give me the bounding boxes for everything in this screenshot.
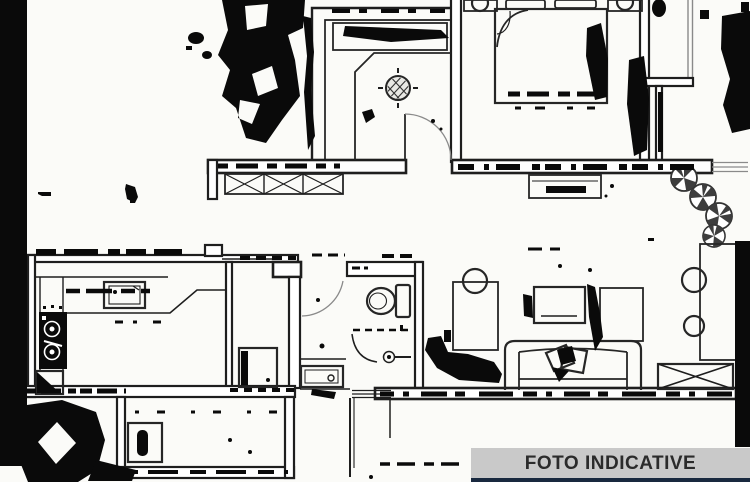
desk-icon bbox=[453, 269, 498, 350]
scan-blob-top bbox=[218, 0, 305, 143]
scan-blob-right bbox=[721, 11, 750, 133]
utility-room bbox=[128, 423, 162, 462]
bench-icon bbox=[529, 175, 601, 198]
window-hatch-icon bbox=[225, 174, 343, 194]
door-swing-icon bbox=[302, 281, 343, 316]
shelf-unit-icon bbox=[682, 244, 737, 360]
washing-machine-icon bbox=[239, 348, 277, 387]
scan-blob-bottom-left bbox=[16, 400, 105, 482]
kitchen bbox=[36, 277, 226, 394]
door-swing-icon bbox=[405, 114, 451, 160]
toilet-icon bbox=[367, 285, 410, 317]
floorplan-drawing bbox=[0, 0, 750, 482]
foto-indicative-banner: FOTO INDICATIVE bbox=[471, 448, 750, 482]
sofa-icon bbox=[505, 341, 641, 390]
left-scan-bar bbox=[0, 0, 27, 466]
bathroom-sink-icon bbox=[300, 359, 346, 387]
corridor bbox=[239, 348, 277, 387]
shower-drain-icon bbox=[352, 334, 411, 363]
scan-artifacts bbox=[0, 0, 750, 482]
radiator-x-icon bbox=[658, 364, 733, 389]
floorplan-screenshot: FOTO INDICATIVE bbox=[0, 0, 750, 482]
banner-navy-strip bbox=[471, 478, 750, 482]
ceiling-lamp-icon bbox=[378, 68, 422, 108]
pillow-icon bbox=[506, 0, 596, 9]
foto-indicative-label: FOTO INDICATIVE bbox=[525, 450, 696, 478]
sideboard-icon bbox=[600, 288, 643, 341]
chair-icon bbox=[463, 269, 487, 293]
scan-blob-desk bbox=[425, 336, 502, 383]
washing-machine-icon bbox=[128, 423, 162, 462]
dressing-room bbox=[333, 23, 451, 160]
plant-icons bbox=[671, 165, 734, 250]
right-scan-bar bbox=[735, 241, 750, 447]
bathroom bbox=[300, 281, 411, 398]
kitchen-sink-icon bbox=[104, 282, 145, 308]
cushion-icon bbox=[546, 345, 587, 382]
coffee-table-icon bbox=[534, 287, 585, 323]
stove-icon bbox=[39, 312, 67, 369]
